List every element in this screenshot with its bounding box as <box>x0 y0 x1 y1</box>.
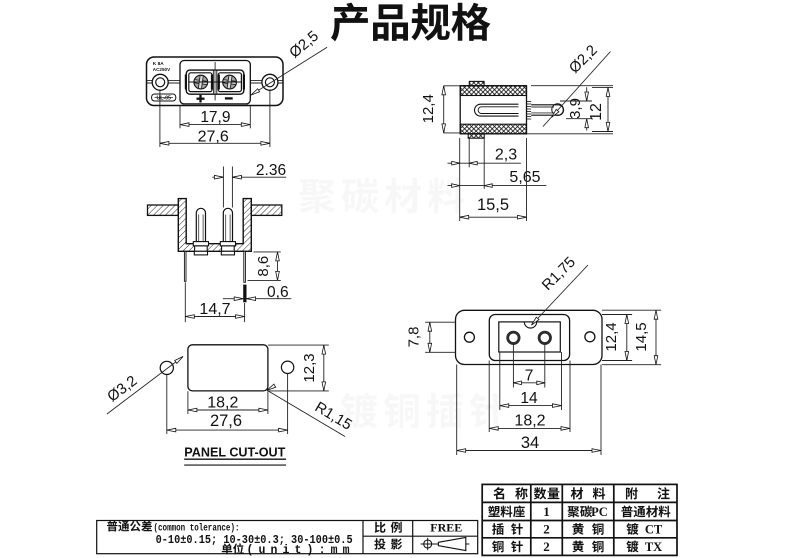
svg-text:7,8: 7,8 <box>406 327 423 348</box>
svg-text:2: 2 <box>543 539 550 554</box>
svg-text:12,3: 12,3 <box>301 353 318 382</box>
svg-text:2.36: 2.36 <box>256 162 286 179</box>
svg-text:27,6: 27,6 <box>198 128 229 145</box>
svg-text:14,7: 14,7 <box>199 301 230 318</box>
svg-text:7: 7 <box>525 367 534 384</box>
svg-text:14: 14 <box>520 390 538 407</box>
svg-text:12,4: 12,4 <box>603 322 620 351</box>
svg-text:18,2: 18,2 <box>514 413 545 430</box>
svg-text:17,9: 17,9 <box>200 109 230 126</box>
svg-text:2: 2 <box>543 522 550 537</box>
svg-text:5,65: 5,65 <box>509 169 540 186</box>
svg-text:12,4: 12,4 <box>420 94 437 123</box>
svg-text:CT: CT <box>645 523 663 537</box>
svg-text:FREE: FREE <box>430 521 462 535</box>
svg-text:18,2: 18,2 <box>207 394 238 411</box>
svg-text:8,6: 8,6 <box>255 256 272 277</box>
svg-text:PC: PC <box>591 505 608 519</box>
svg-text:0,6: 0,6 <box>267 284 289 301</box>
svg-text:AC250V: AC250V <box>153 67 171 72</box>
svg-text:(unit):mm: (unit):mm <box>247 544 350 557</box>
svg-text:15,5: 15,5 <box>477 196 509 214</box>
svg-text:12: 12 <box>588 103 605 121</box>
svg-text:TX: TX <box>645 540 662 554</box>
svg-text:PANEL CUT-OUT: PANEL CUT-OUT <box>184 444 285 459</box>
svg-text:27,6: 27,6 <box>210 412 242 430</box>
svg-text:14,5: 14,5 <box>633 322 650 351</box>
svg-text:2,3: 2,3 <box>495 147 517 164</box>
svg-text:34: 34 <box>521 434 539 452</box>
svg-text:3,9: 3,9 <box>567 98 584 119</box>
svg-text:1: 1 <box>543 504 550 519</box>
svg-text:UL-05: UL-05 <box>156 95 171 101</box>
